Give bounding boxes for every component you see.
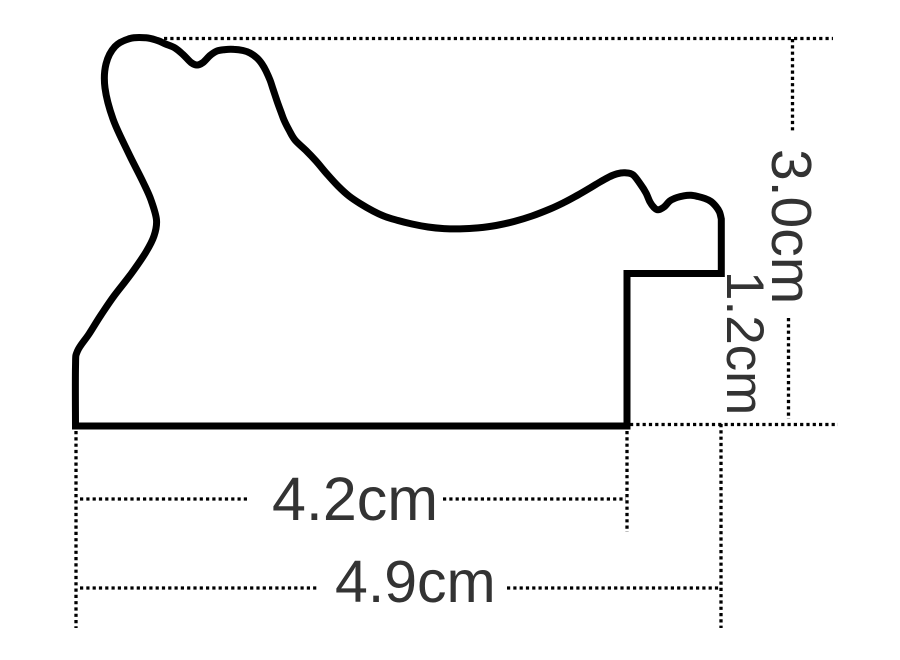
svg-text:4.2cm: 4.2cm (272, 465, 438, 533)
svg-text:1.2cm: 1.2cm (715, 271, 774, 415)
svg-text:4.9cm: 4.9cm (335, 549, 496, 615)
